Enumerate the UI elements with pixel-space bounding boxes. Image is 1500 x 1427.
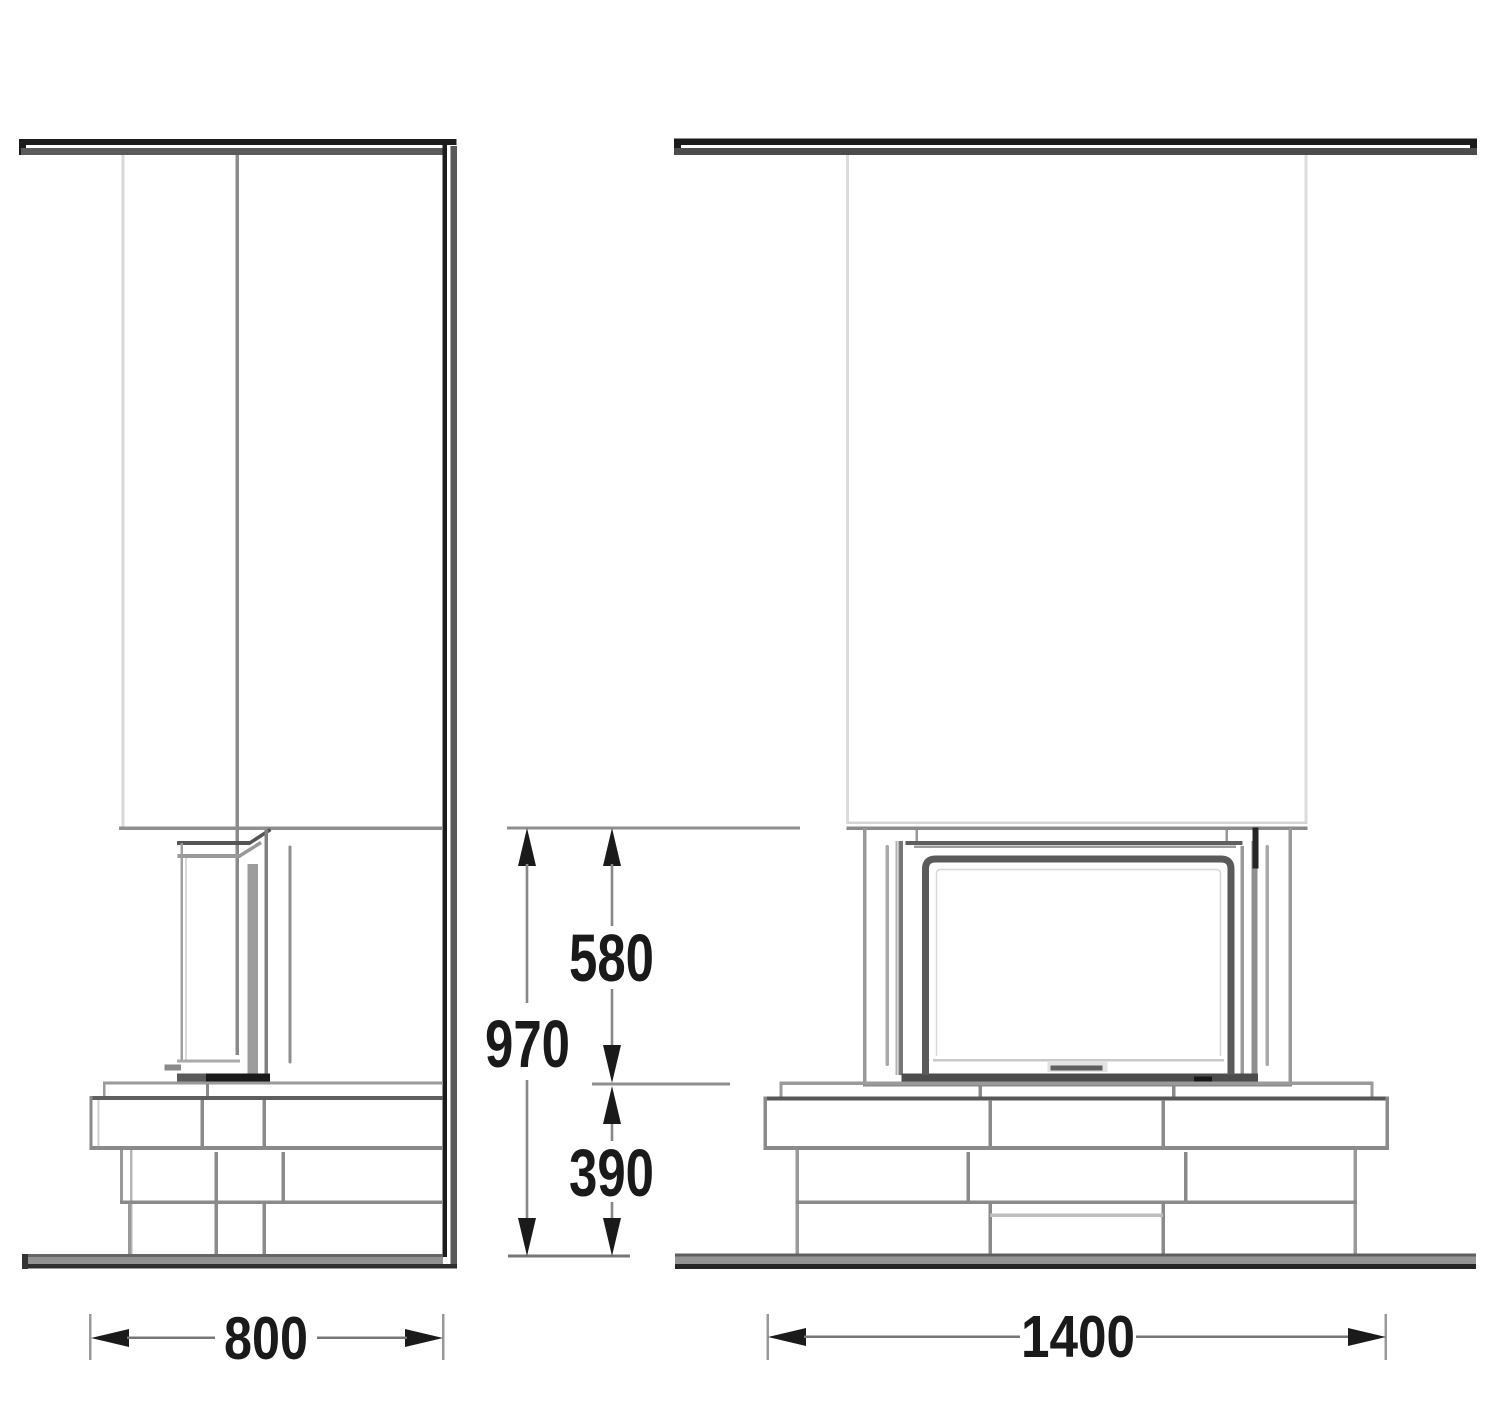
svg-text:1400: 1400: [1021, 1304, 1135, 1370]
svg-text:800: 800: [224, 1305, 308, 1372]
svg-text:390: 390: [569, 1136, 654, 1211]
svg-text:970: 970: [485, 1007, 570, 1082]
svg-text:580: 580: [569, 921, 654, 996]
